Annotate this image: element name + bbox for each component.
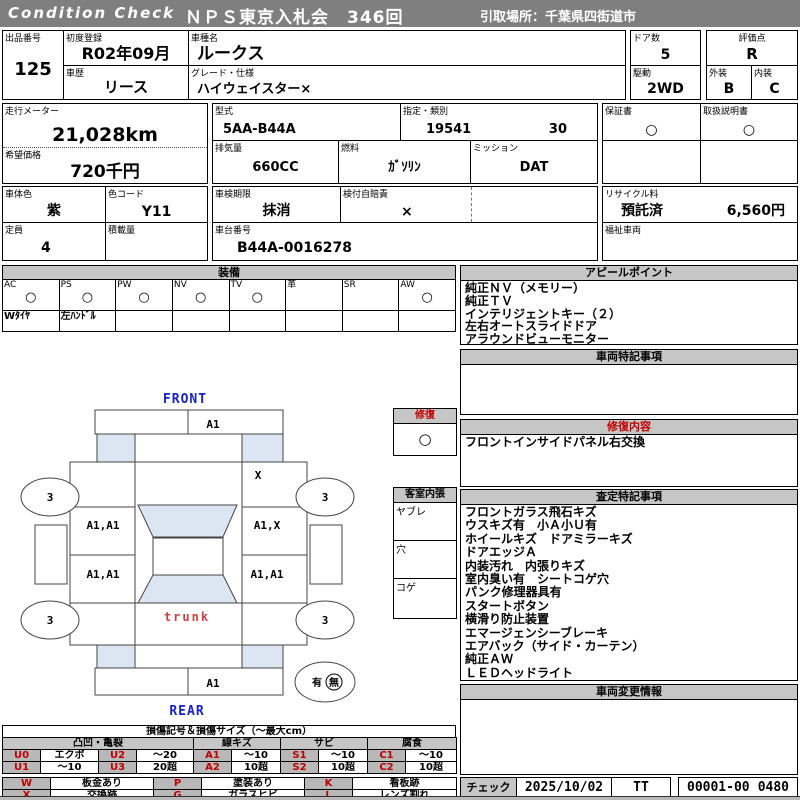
rear-bumper-panel	[95, 668, 283, 695]
capacity-cell: 定員 4	[2, 222, 106, 261]
right-rocker-panel	[310, 525, 342, 584]
warranty-cell: 保証書 ○	[602, 103, 701, 141]
spare-has-label: 有	[312, 676, 322, 689]
rear-glass	[138, 575, 237, 603]
equipment-mark: ○	[400, 290, 454, 310]
doors-label: ドア数	[633, 31, 660, 44]
legend-value: 塗装あり	[202, 778, 305, 790]
score-label: 評価点	[707, 31, 797, 44]
fuel-label: 燃料	[341, 141, 359, 154]
appeal-points-body: 純正ＮＶ（メモリー） 純正ＴＶ インテリジェントキー（２） 左右オートスライドド…	[461, 281, 797, 347]
equipment-label: PS	[61, 280, 115, 290]
exterior-grade-label: 外装	[709, 66, 727, 79]
chassis-number-value: B44A-0016278	[237, 240, 597, 256]
legend-code: A1	[194, 750, 232, 762]
header-bar: Condition Check ＮＰＳ東京入札会 346回 引取場所：千葉県四街…	[0, 0, 800, 27]
color-code-cell: 色コード Y11	[105, 186, 208, 223]
model-code-label: 型式	[215, 104, 233, 117]
equipment-mark: ○	[231, 290, 285, 310]
insurance-cell: 検付自賠責 ×	[340, 186, 598, 223]
legend-row-3: W板金あり P塗装あり K看板跡	[3, 778, 457, 790]
auction-title: ＮＰＳ東京入札会 346回	[185, 3, 404, 28]
appeal-points-title: アピールポイント	[461, 266, 797, 281]
welfare-vehicle-label: 福祉車両	[605, 223, 641, 236]
windshield-glass	[138, 505, 237, 537]
inspection-value: 抹消	[213, 200, 340, 220]
equipment-mark	[344, 290, 398, 310]
manual-label: 取扱説明書	[703, 104, 748, 117]
equipment-col-leather: 革	[286, 280, 343, 311]
legend-value: ～10	[406, 750, 457, 762]
color-code-value: Y11	[106, 204, 207, 220]
equipment-col-nv: NV○	[172, 280, 229, 311]
equipment-label: TV	[231, 280, 285, 290]
exterior-grade-cell: 外装 B	[706, 65, 752, 100]
chassis-number-cell: 車台番号 B44A-0016278	[212, 222, 598, 261]
repair-flag-box: 修復 ○	[393, 408, 457, 456]
spare-tire-badge	[295, 662, 355, 702]
history-value: リース	[64, 76, 188, 97]
right-rear-door-mark: A1,A1	[250, 568, 283, 581]
repair-details-body: フロントインサイドパネル右交換	[461, 435, 797, 450]
legend-code: U2	[99, 750, 137, 762]
lot-number-value: 125	[3, 59, 63, 80]
history-cell: 車歴 リース	[63, 65, 189, 100]
cabin-row-hole: 穴	[394, 541, 456, 579]
class-designation-cell: 指定・類別 19541 30	[400, 103, 598, 141]
equipment-note	[287, 311, 341, 331]
left-front-door-mark: A1,A1	[86, 519, 119, 532]
tire-rear-right-mark: 3	[322, 614, 329, 627]
chassis-number-label: 車台番号	[215, 223, 251, 236]
interior-grade-label: 内装	[754, 66, 772, 79]
load-capacity-label: 積載量	[108, 223, 135, 236]
legend-code: A2	[194, 762, 232, 774]
change-info-body	[461, 700, 797, 702]
condition-check-sheet: Condition Check ＮＰＳ東京入札会 346回 引取場所：千葉県四街…	[0, 0, 800, 800]
warranty-mark: ○	[603, 122, 700, 138]
first-registration-value: R02年09月	[64, 40, 188, 64]
equipment-label: NV	[174, 280, 228, 290]
vehicle-notes-body	[461, 365, 797, 367]
insurance-divider	[471, 187, 472, 222]
equipment-label: 革	[287, 280, 341, 290]
roof-panel	[153, 538, 223, 575]
equipment-mark: ○	[4, 290, 58, 310]
tire-rear-left-mark: 3	[47, 614, 54, 627]
equipment-grid: AC○ PS○ PW○ NV○ TV○ 革 SR AW○ Wﾀｲﾔ 左ﾊﾝﾄﾞﾙ	[2, 279, 456, 332]
grade-value: ハイウェイスター×	[197, 78, 625, 97]
inspection-cell: 車検期限 抹消	[212, 186, 341, 223]
body-color-cell: 車体色 紫	[2, 186, 106, 223]
equipment-note	[344, 311, 398, 331]
brand-logo: Condition Check	[8, 4, 175, 22]
equipment-label: PW	[117, 280, 171, 290]
first-registration-cell: 初度登録 R02年09月	[63, 30, 189, 66]
legend-code: W	[3, 778, 51, 790]
manual-empty-cell	[700, 140, 798, 184]
damage-legend: 損傷記号＆損傷サイズ（～最大cm） 凸凹・亀裂 線キズ サビ 腐食 U0エクボ …	[2, 725, 456, 800]
repair-details-section: 修復内容 フロントインサイドパネル右交換	[460, 419, 798, 487]
equipment-col-tv: TV○	[229, 280, 286, 311]
trunk-label: trunk	[164, 610, 210, 624]
recycle-fee-label: リサイクル料	[605, 187, 659, 200]
vehicle-notes-title: 車両特記事項	[461, 350, 797, 365]
check-code2: 0480	[758, 778, 789, 797]
left-rocker-panel	[35, 525, 67, 584]
odometer-label: 走行メーター	[5, 104, 59, 117]
equipment-note	[400, 311, 454, 331]
capacity-value: 4	[41, 240, 105, 256]
change-info-title: 車両変更情報	[461, 685, 797, 700]
equipment-mark	[287, 290, 341, 310]
class-designation-label: 指定・類別	[403, 104, 448, 117]
legend-group-scratches: 線キズ	[194, 738, 281, 750]
cabin-interior-box: 客室内張 ヤブレ 穴 コゲ	[393, 487, 457, 619]
legend-group-rust: サビ	[281, 738, 368, 750]
equipment-col-ac: AC○	[3, 280, 60, 311]
legend-code: C1	[368, 750, 406, 762]
odometer-price-box: 走行メーター 21,028km 希望価格 720千円	[2, 103, 208, 184]
legend-code: U0	[3, 750, 41, 762]
equipment-note	[117, 311, 171, 331]
legend-value: ～10	[232, 750, 281, 762]
doors-cell: ドア数 5	[630, 30, 701, 66]
lot-number-cell: 出品番号 125	[2, 30, 64, 100]
model-code-cell: 型式 5AA-B44A	[212, 103, 401, 141]
cabin-row-tear: ヤブレ	[394, 503, 456, 541]
hood-corner-left	[97, 434, 135, 462]
exterior-grade-value: B	[707, 81, 751, 97]
check-date: 2025/10/02	[517, 778, 611, 797]
equipment-col-sr: SR	[342, 280, 399, 311]
doors-value: 5	[631, 47, 700, 63]
equipment-mark-row: AC○ PS○ PW○ NV○ TV○ 革 SR AW○	[3, 280, 456, 311]
score-cell: 評価点 R	[706, 30, 798, 66]
asking-price-value: 720千円	[3, 157, 207, 182]
equipment-col-aw: AW○	[399, 280, 456, 311]
transmission-cell: ミッション DAT	[470, 140, 598, 184]
change-info-section: 車両変更情報	[460, 684, 798, 775]
manual-mark: ○	[701, 122, 797, 138]
legend-row-2: U1～10 U320超 A210超 S210超 C210超	[3, 762, 457, 774]
displacement-label: 排気量	[215, 141, 242, 154]
equipment-mark: ○	[61, 290, 115, 310]
inspection-label: 車検期限	[215, 187, 251, 200]
odometer-value: 21,028km	[3, 124, 207, 146]
repair-details-title: 修復内容	[461, 420, 797, 435]
spare-none-label: 無	[329, 676, 339, 689]
equipment-col-pw: PW○	[116, 280, 173, 311]
equipment-mark: ○	[117, 290, 171, 310]
asking-price-cell: 希望価格 720千円	[3, 148, 207, 183]
drive-value: 2WD	[631, 81, 700, 97]
legend-value: エクボ	[41, 750, 99, 762]
drive-cell: 駆動 2WD	[630, 65, 701, 100]
assessment-notes-title: 査定特記事項	[461, 490, 797, 505]
cabin-row-label: 穴	[396, 541, 406, 556]
right-front-door-mark: A1,X	[254, 519, 281, 532]
equipment-col-ps: PS○	[59, 280, 116, 311]
legend-code: K	[305, 778, 353, 790]
legend-group-corrosion: 腐食	[368, 738, 457, 750]
score-value: R	[707, 45, 797, 63]
legend-value: ～20	[137, 750, 194, 762]
welfare-vehicle-cell: 福祉車両	[602, 222, 798, 261]
legend-code: U3	[99, 762, 137, 774]
front-bumper-panel	[95, 410, 283, 434]
legend-value: 20超	[137, 762, 194, 774]
equipment-note	[231, 311, 285, 331]
insurance-label: 検付自賠責	[343, 187, 388, 200]
cabin-row-label: ヤブレ	[396, 503, 426, 518]
model-code-value: 5AA-B44A	[223, 122, 400, 137]
equipment-mark: ○	[174, 290, 228, 310]
assessment-notes-body: フロントガラス飛石キズ ウスキズ有 小Ａ小Ｕ有 ホイールキズ ドアミラーキズ ド…	[461, 505, 797, 681]
front-bumper-mark: A1	[206, 418, 220, 431]
right-front-fender-mark: X	[255, 469, 262, 482]
legend-code: C2	[368, 762, 406, 774]
check-code-cell: 00001-00 0480	[678, 777, 798, 798]
damage-size-table: 凸凹・亀裂 線キズ サビ 腐食 U0エクボ U2～20 A1～10 S1～10 …	[2, 737, 457, 774]
transmission-value: DAT	[471, 160, 597, 175]
odometer-cell: 走行メーター 21,028km	[3, 104, 207, 148]
legend-value: 10超	[406, 762, 457, 774]
displacement-cell: 排気量 660CC	[212, 140, 339, 184]
equipment-title: 装備	[2, 265, 456, 280]
fuel-cell: 燃料 ｶﾞｿﾘﾝ	[338, 140, 471, 184]
capacity-label: 定員	[5, 223, 23, 236]
pickup-location: 引取場所：千葉県四街道市	[480, 6, 636, 25]
rear-label: REAR	[169, 704, 204, 719]
legend-value: ～10	[319, 750, 368, 762]
car-damage-diagram: FRONT A1 A1 3 3 3 3 X A1,A1 A1	[20, 388, 390, 722]
vehicle-notes-section: 車両特記事項	[460, 349, 798, 415]
legend-group-dents: 凸凹・亀裂	[3, 738, 194, 750]
hood-corner-right	[242, 434, 283, 462]
legend-code: S1	[281, 750, 319, 762]
front-label: FRONT	[163, 392, 207, 407]
tire-front-right-mark: 3	[322, 491, 329, 504]
legend-value: ～10	[41, 762, 99, 774]
legend-value: 板金あり	[51, 778, 154, 790]
cabin-interior-title: 客室内張	[394, 488, 456, 503]
assessment-notes-section: 査定特記事項 フロントガラス飛石キズ ウスキズ有 小Ａ小Ｕ有 ホイールキズ ドア…	[460, 489, 798, 681]
model-name-cell: 車種名 ルークス	[188, 30, 626, 66]
equipment-label: SR	[344, 280, 398, 290]
cabin-row-label: コゲ	[396, 579, 416, 594]
equipment-note: 左ﾊﾝﾄﾞﾙ	[61, 311, 115, 331]
repair-flag-mark: ○	[394, 424, 456, 454]
equipment-label: AC	[4, 280, 58, 290]
rear-bumper-mark: A1	[206, 677, 220, 690]
legend-code: S2	[281, 762, 319, 774]
color-code-label: 色コード	[108, 187, 144, 200]
equipment-note-row: Wﾀｲﾔ 左ﾊﾝﾄﾞﾙ	[3, 311, 456, 332]
equipment-label: AW	[400, 280, 454, 290]
warranty-empty-cell	[602, 140, 701, 184]
left-rear-door-mark: A1,A1	[86, 568, 119, 581]
body-color-value: 紫	[3, 200, 105, 220]
grade-cell: グレード・仕様 ハイウェイスター×	[188, 65, 626, 100]
transmission-label: ミッション	[473, 141, 518, 154]
equipment-note	[174, 311, 228, 331]
equipment-note: Wﾀｲﾔ	[4, 311, 58, 331]
fuel-value: ｶﾞｿﾘﾝ	[339, 156, 470, 175]
legend-value: 看板跡	[353, 778, 457, 790]
manual-cell: 取扱説明書 ○	[700, 103, 798, 141]
warranty-label: 保証書	[605, 104, 632, 117]
equipment-table: 装備 AC○ PS○ PW○ NV○ TV○ 革 SR AW○ Wﾀｲﾔ 左ﾊﾝ…	[2, 265, 456, 332]
legend-row-1: U0エクボ U2～20 A1～10 S1～10 C1～10	[3, 750, 457, 762]
check-inspector: TT	[612, 778, 670, 797]
insurance-mark: ×	[401, 204, 597, 220]
recycle-fee-value: 6,560円	[603, 200, 785, 220]
repair-flag-title: 修復	[394, 409, 456, 424]
body-color-label: 車体色	[5, 187, 32, 200]
drive-label: 駆動	[633, 66, 651, 79]
legend-group-header-row: 凸凹・亀裂 線キズ サビ 腐食	[3, 738, 457, 750]
check-label-cell: チェック	[460, 777, 517, 798]
tire-front-left-mark: 3	[47, 491, 54, 504]
legend-value: 10超	[319, 762, 368, 774]
displacement-value: 660CC	[213, 160, 338, 175]
interior-grade-value: C	[752, 81, 797, 97]
recycle-fee-cell: リサイクル料 預託済 6,560円	[602, 186, 798, 223]
check-date-cell: 2025/10/02	[516, 777, 612, 798]
appeal-points-section: アピールポイント 純正ＮＶ（メモリー） 純正ＴＶ インテリジェントキー（２） 左…	[460, 265, 798, 345]
class-sub-value: 30	[401, 122, 567, 137]
legend-code: U1	[3, 762, 41, 774]
cabin-row-burn: コゲ	[394, 579, 456, 617]
lot-number-label: 出品番号	[5, 31, 41, 44]
rear-corner-right	[242, 645, 283, 668]
load-capacity-cell: 積載量	[105, 222, 208, 261]
check-code: 00001-00	[687, 778, 750, 797]
legend-code: P	[154, 778, 202, 790]
interior-grade-cell: 内装 C	[751, 65, 798, 100]
model-name-value: ルークス	[197, 39, 625, 64]
rear-corner-left	[97, 645, 135, 668]
check-inspector-cell: TT	[611, 777, 671, 798]
legend-value: 10超	[232, 762, 281, 774]
